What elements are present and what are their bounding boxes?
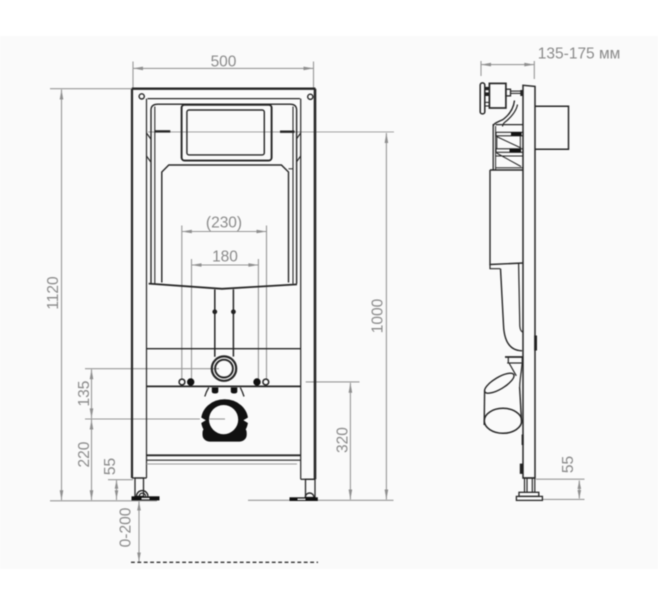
svg-text:220: 220 [76,441,93,467]
svg-text:1120: 1120 [45,276,62,310]
svg-text:55: 55 [102,458,119,475]
svg-text:(230): (230) [206,214,242,231]
svg-text:135-175 мм: 135-175 мм [538,46,621,63]
svg-text:55: 55 [560,456,577,473]
svg-text:500: 500 [211,54,237,71]
svg-text:0-200: 0-200 [118,507,135,547]
svg-text:180: 180 [212,248,238,265]
svg-text:135: 135 [76,381,93,407]
svg-text:320: 320 [335,427,352,453]
svg-text:1000: 1000 [370,298,387,333]
